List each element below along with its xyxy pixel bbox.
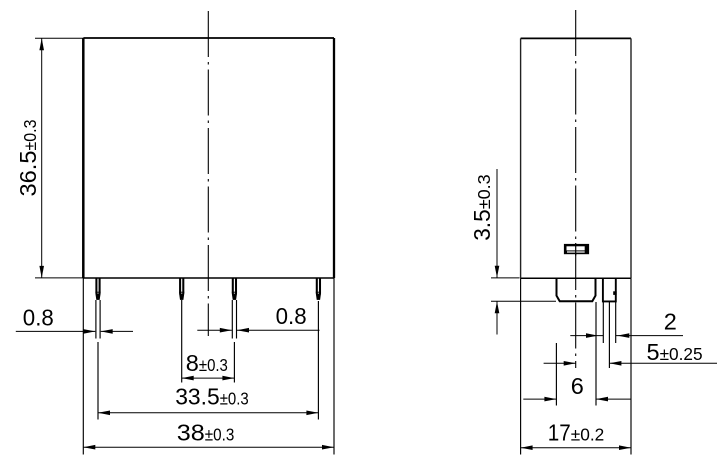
svg-text:2: 2 — [664, 309, 677, 335]
svg-text:6: 6 — [571, 373, 584, 399]
svg-text:0.8: 0.8 — [23, 305, 54, 331]
svg-text:0.8: 0.8 — [276, 303, 307, 329]
